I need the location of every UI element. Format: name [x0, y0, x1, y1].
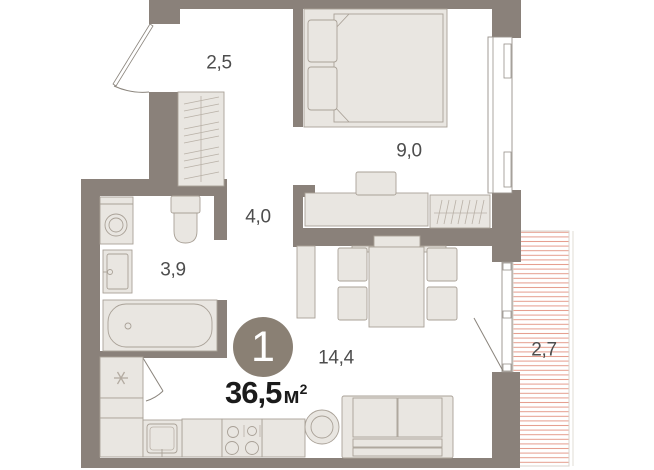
kitchen-sink	[143, 420, 182, 457]
room-area-label-living-kitchen: 14,4	[318, 349, 354, 368]
sofa	[342, 396, 453, 458]
room-count-value: 1	[251, 326, 275, 369]
room-area-label-hallway: 2,5	[206, 54, 232, 73]
living-cabinet	[297, 246, 315, 318]
room-area-label-bathroom: 3,9	[160, 261, 186, 280]
balcony-door	[474, 318, 503, 371]
dining-set	[338, 236, 457, 327]
bedroom-desk	[305, 172, 428, 226]
bedroom-window	[488, 37, 512, 193]
entrance-door	[113, 24, 153, 92]
balcony-glazing	[502, 262, 512, 372]
total-area: 36,5м2	[225, 377, 307, 408]
floor-plan-canvas	[0, 0, 654, 470]
toilet	[171, 196, 200, 243]
floor-plan: 2,5 9,0 4,0 3,9 14,4 2,7 1 36,5м2	[0, 0, 654, 470]
stove	[222, 419, 262, 457]
bathroom-door	[143, 358, 163, 401]
total-area-value: 36,5	[225, 375, 281, 410]
bathtub	[103, 300, 217, 351]
washing-machine	[100, 197, 133, 244]
hallway-wardrobe	[178, 92, 224, 186]
total-area-sup: 2	[300, 381, 308, 397]
room-area-label-balcony: 2,7	[531, 341, 557, 360]
room-count-badge: 1	[233, 317, 293, 377]
round-table	[305, 410, 339, 444]
room-area-label-corridor: 4,0	[245, 208, 271, 227]
bathroom-sink	[103, 250, 132, 293]
room-area-label-bedroom: 9,0	[396, 142, 422, 161]
total-area-unit: м	[283, 383, 299, 408]
bedroom-closet	[430, 195, 490, 228]
bed	[304, 9, 447, 127]
